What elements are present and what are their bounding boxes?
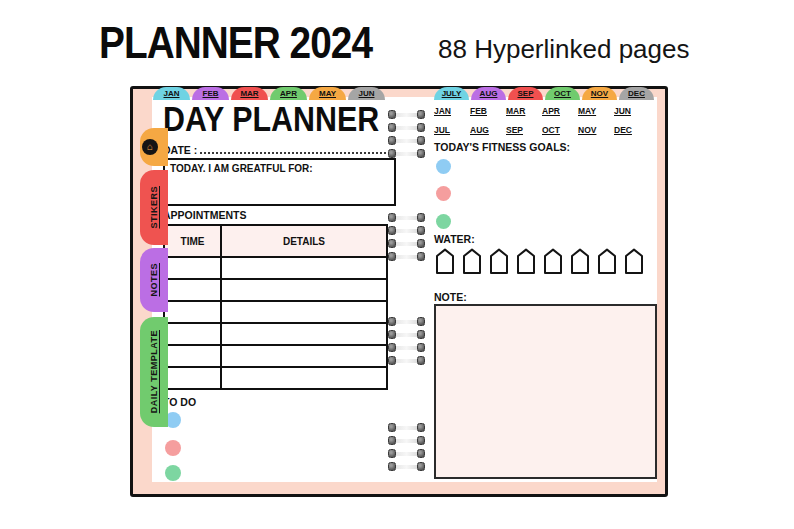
binder-ring bbox=[388, 317, 425, 326]
side-tab-notes-label: NOTES bbox=[149, 263, 159, 297]
appointment-details-cell[interactable] bbox=[222, 322, 386, 344]
side-tab-notes[interactable]: NOTES bbox=[140, 248, 168, 312]
month-link-aug[interactable]: AUG bbox=[470, 125, 506, 135]
appointment-details-cell[interactable] bbox=[222, 344, 386, 366]
water-cup-icon[interactable] bbox=[596, 247, 618, 275]
appointment-time-cell[interactable] bbox=[165, 344, 222, 366]
binder-ring bbox=[388, 213, 425, 222]
side-tab-stikers[interactable]: STIKERS bbox=[140, 170, 168, 245]
appointment-details-cell[interactable] bbox=[222, 278, 386, 300]
side-tab-daily-template-label: DAILY TEMPLATE bbox=[149, 330, 159, 413]
side-tab-home[interactable]: ⌂ bbox=[140, 128, 168, 166]
binder-ring bbox=[388, 330, 425, 339]
appointment-time-cell[interactable] bbox=[165, 322, 222, 344]
appointments-label: APPOINTMENTS bbox=[163, 209, 246, 221]
water-cup-icon[interactable] bbox=[434, 247, 456, 275]
binder-ring bbox=[388, 436, 425, 445]
month-tab-row-left: JAN FEB MAR APR MAY JUN bbox=[153, 87, 385, 100]
tab-apr[interactable]: APR bbox=[270, 87, 307, 100]
water-cup-icon[interactable] bbox=[623, 247, 645, 275]
appointment-details-cell[interactable] bbox=[222, 366, 386, 388]
month-link-jan[interactable]: JAN bbox=[434, 106, 470, 116]
tab-oct[interactable]: OCT bbox=[545, 87, 580, 100]
note-label: NOTE: bbox=[434, 291, 467, 303]
product-subtitle: 88 Hyperlinked pages bbox=[438, 34, 690, 65]
month-link-mar[interactable]: MAR bbox=[506, 106, 542, 116]
month-link-grid: JAN FEB MAR APR MAY JUN JUL AUG SEP OCT … bbox=[434, 106, 650, 135]
side-tab-stikers-label: STIKERS bbox=[149, 186, 159, 229]
month-link-feb[interactable]: FEB bbox=[470, 106, 506, 116]
fitness-goals-label: TODAY'S FITNESS GOALS: bbox=[434, 141, 570, 153]
binder-ring bbox=[388, 226, 425, 235]
water-cup-icon[interactable] bbox=[515, 247, 537, 275]
side-tab-daily-template[interactable]: DAILY TEMPLATE bbox=[140, 317, 168, 427]
binder-ring bbox=[388, 462, 425, 471]
date-label: DATE : bbox=[163, 144, 197, 156]
note-box[interactable] bbox=[434, 304, 657, 479]
binder-ring bbox=[388, 110, 425, 119]
page-title: DAY PLANNER bbox=[163, 100, 379, 140]
month-link-oct[interactable]: OCT bbox=[542, 125, 578, 135]
fitness-bullet-blue bbox=[436, 159, 451, 174]
appointment-time-cell[interactable] bbox=[165, 278, 222, 300]
binder-ring bbox=[388, 123, 425, 132]
month-link-jun[interactable]: JUN bbox=[614, 106, 650, 116]
month-link-nov[interactable]: NOV bbox=[578, 125, 614, 135]
appointment-time-cell[interactable] bbox=[165, 366, 222, 388]
tab-aug[interactable]: AUG bbox=[471, 87, 506, 100]
water-cup-icon[interactable] bbox=[488, 247, 510, 275]
month-link-dec[interactable]: DEC bbox=[614, 125, 650, 135]
appointment-time-cell[interactable] bbox=[165, 256, 222, 278]
binder-ring bbox=[388, 149, 425, 158]
water-cup-icon[interactable] bbox=[542, 247, 564, 275]
grateful-label: TODAY. I AM GREATFUL FOR: bbox=[170, 163, 313, 174]
fitness-bullet-pink bbox=[436, 186, 451, 201]
tab-may[interactable]: MAY bbox=[309, 87, 346, 100]
grateful-box[interactable]: TODAY. I AM GREATFUL FOR: bbox=[163, 158, 396, 206]
appointment-details-cell[interactable] bbox=[222, 256, 386, 278]
appointments-col-time: TIME bbox=[165, 226, 222, 256]
appointments-table: TIME DETAILS bbox=[163, 224, 388, 390]
tab-feb[interactable]: FEB bbox=[192, 87, 229, 100]
tab-jan[interactable]: JAN bbox=[153, 87, 190, 100]
date-row: DATE : bbox=[163, 142, 386, 156]
binder-ring bbox=[388, 423, 425, 432]
binder-ring bbox=[388, 356, 425, 365]
todo-bullet-green bbox=[165, 465, 181, 481]
appointment-details-cell[interactable] bbox=[222, 300, 386, 322]
home-icon[interactable]: ⌂ bbox=[142, 139, 158, 155]
planner-cover: JAN FEB MAR APR MAY JUN JULY AUG SEP OCT… bbox=[130, 86, 668, 497]
month-link-jul[interactable]: JUL bbox=[434, 125, 470, 135]
tab-jun[interactable]: JUN bbox=[348, 87, 385, 100]
todo-bullet-pink bbox=[165, 440, 181, 456]
tab-sep[interactable]: SEP bbox=[508, 87, 543, 100]
binder-ring bbox=[388, 136, 425, 145]
appointment-time-cell[interactable] bbox=[165, 300, 222, 322]
binder-ring bbox=[388, 449, 425, 458]
water-tracker bbox=[434, 247, 645, 275]
appointments-col-details: DETAILS bbox=[222, 226, 386, 256]
tab-nov[interactable]: NOV bbox=[582, 87, 617, 100]
binder-ring bbox=[388, 239, 425, 248]
water-cup-icon[interactable] bbox=[569, 247, 591, 275]
binder-ring bbox=[388, 252, 425, 261]
date-input-line[interactable] bbox=[200, 142, 386, 154]
water-cup-icon[interactable] bbox=[461, 247, 483, 275]
tab-dec[interactable]: DEC bbox=[619, 87, 654, 100]
month-link-apr[interactable]: APR bbox=[542, 106, 578, 116]
month-link-may[interactable]: MAY bbox=[578, 106, 614, 116]
tab-july[interactable]: JULY bbox=[434, 87, 469, 100]
binder-ring bbox=[388, 343, 425, 352]
water-label: WATER: bbox=[434, 233, 475, 245]
month-link-sep[interactable]: SEP bbox=[506, 125, 542, 135]
tab-mar[interactable]: MAR bbox=[231, 87, 268, 100]
product-title: PLANNER 2024 bbox=[99, 18, 372, 68]
month-tab-row-right: JULY AUG SEP OCT NOV DEC bbox=[434, 87, 654, 100]
fitness-bullet-green bbox=[436, 214, 451, 229]
